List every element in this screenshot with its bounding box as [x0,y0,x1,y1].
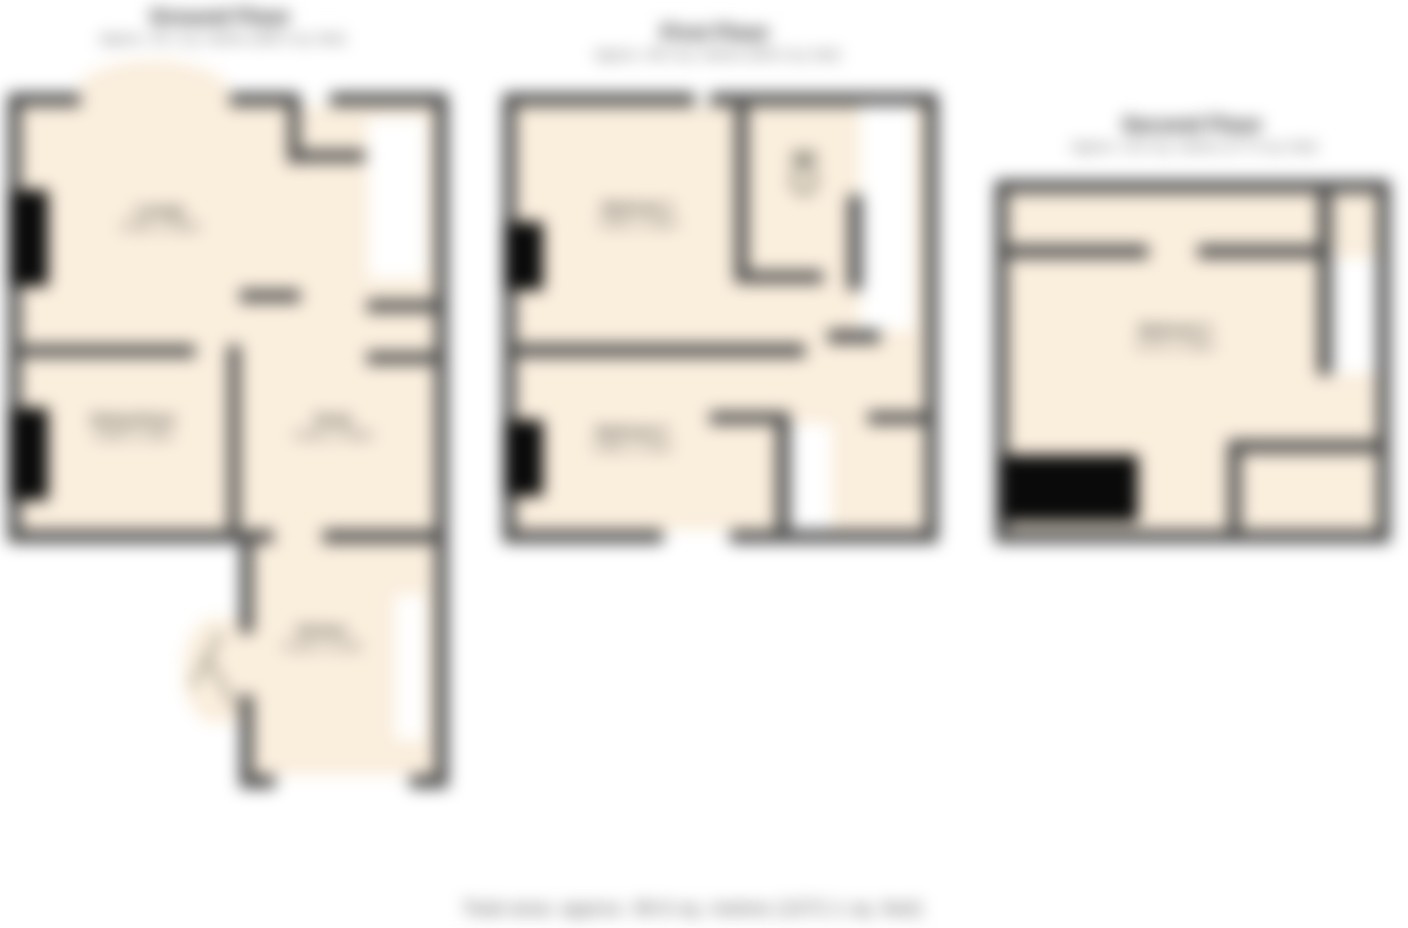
wall [435,543,448,788]
room-label-study: Study 2.84m x 2.69m [293,412,372,442]
ground-floor-subtitle: Approx. 45.1 sq. metres (485.5 sq. feet) [99,30,346,46]
room-label-bedroom1: Bedroom 1 4.95m x 3.66m [598,200,677,230]
ground-floor-title: Ground Floor [150,4,291,30]
interior-wall [8,345,195,357]
room-label-dining: Dining Room 3.58m x 3.28m [91,412,175,442]
floorplan-image: Ground Floor Approx. 45.1 sq. metres (48… [0,0,1408,928]
wall [1377,180,1390,543]
landing-wall [503,344,805,357]
toilet-icon [791,165,817,195]
window-block [10,190,48,286]
stairwell-wall [776,412,790,530]
stairs-area [368,118,426,278]
first-floor-title: First Floor [661,20,770,46]
wall [330,93,448,106]
window-block [505,420,543,496]
window-block [505,222,543,290]
wall [323,530,448,543]
landing-wall-stub [828,330,880,343]
wall [503,93,695,106]
second-floor-title: Second Floor [1122,112,1263,138]
stairs-area [1332,258,1377,373]
stairs-area [860,105,914,330]
wall [435,93,448,543]
room-label-lounge: Lounge 4.93m x 3.66m [120,203,199,233]
bathroom-wall [735,93,748,283]
eaves-wall [1228,440,1241,543]
wall [730,530,938,543]
stair-wall-stub [367,300,435,312]
wall [240,543,253,633]
stair-wall-stub [367,352,435,364]
room-divider-wall [228,345,240,542]
interior-wall [1318,180,1332,375]
kitchen-window [275,775,410,788]
front-door-gap [300,93,330,106]
toilet-icon [792,152,816,163]
wall [503,530,663,543]
interior-wall [868,412,938,424]
interior-wall [710,412,780,424]
window-gap [663,530,730,543]
total-area-text: Total area: approx. 99.6 sq. metres (107… [462,898,922,921]
room-label-bedroom2: Bedroom 2 3.58m x 3.30m [592,424,671,454]
interior-wall [240,290,300,302]
room-label-bedroom3: Bedroom 3 4.57m x 3.89m [1135,322,1214,352]
stairwell-down [790,424,832,530]
second-floor-subtitle: Approx. 16.5 sq. metres (177.6 sq. feet) [1071,138,1318,154]
window-block [10,408,48,500]
wall [995,530,1390,543]
interior-wall [1198,245,1320,258]
first-floor-subtitle: Approx. 38.0 sq. metres (409.0 sq. feet) [594,46,841,62]
window-gap [695,93,710,106]
stair-wall [848,195,862,290]
wall [925,93,938,543]
eaves-wall [1228,440,1390,453]
kitchen-side-window [395,595,425,740]
interior-wall [995,245,1148,258]
room-label-kitchen: Kitchen 3.33m x 2.24m [282,623,361,653]
hall-wall [288,150,365,162]
bathroom-wall [748,271,823,283]
stairwell-block [1002,455,1138,522]
